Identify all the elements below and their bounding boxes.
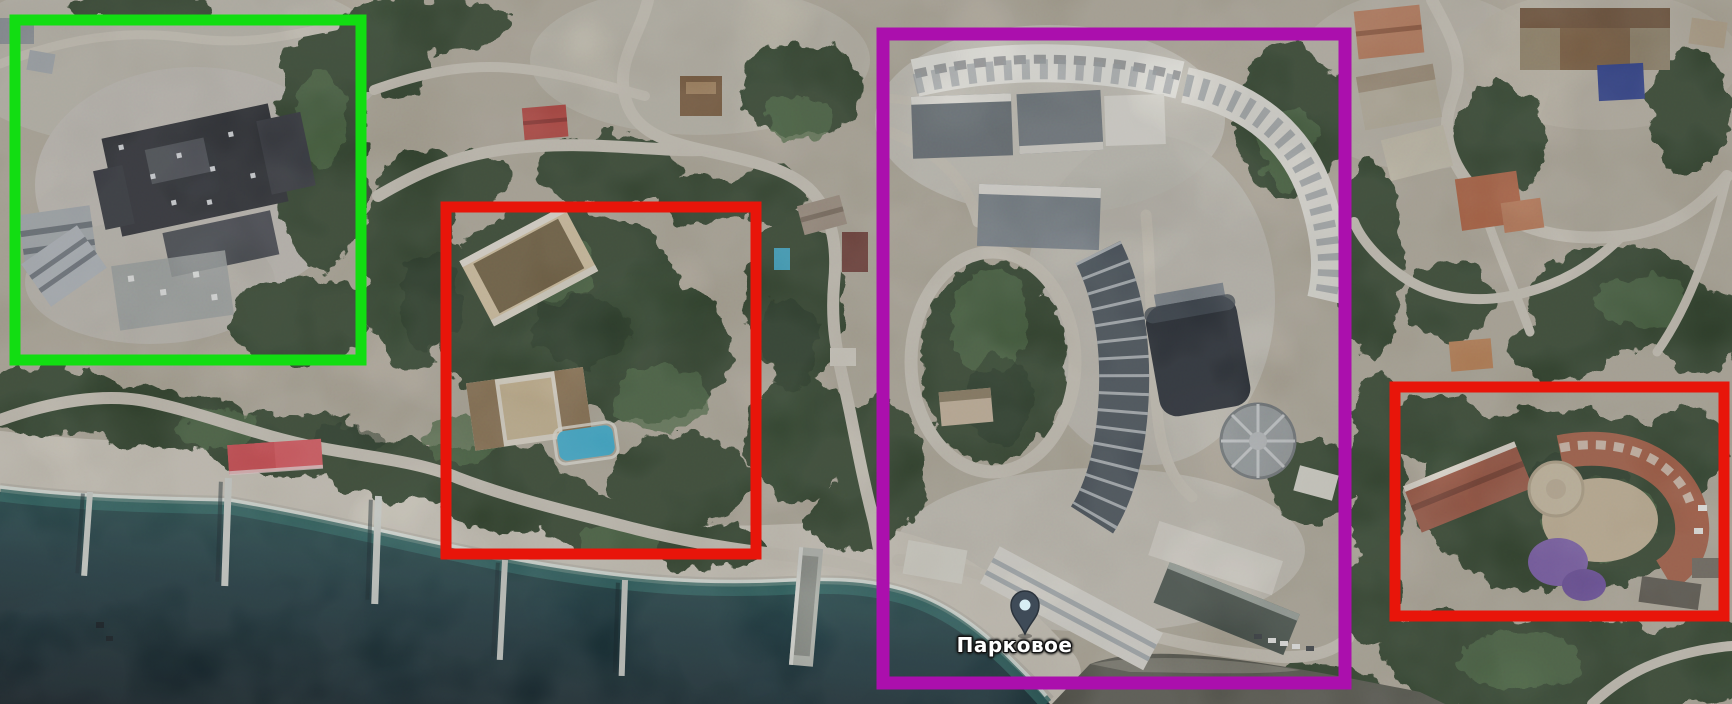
place-label[interactable]: Парковое [942,633,1087,657]
photo-grain [0,0,1732,704]
map-viewport[interactable]: Парковое [0,0,1732,704]
